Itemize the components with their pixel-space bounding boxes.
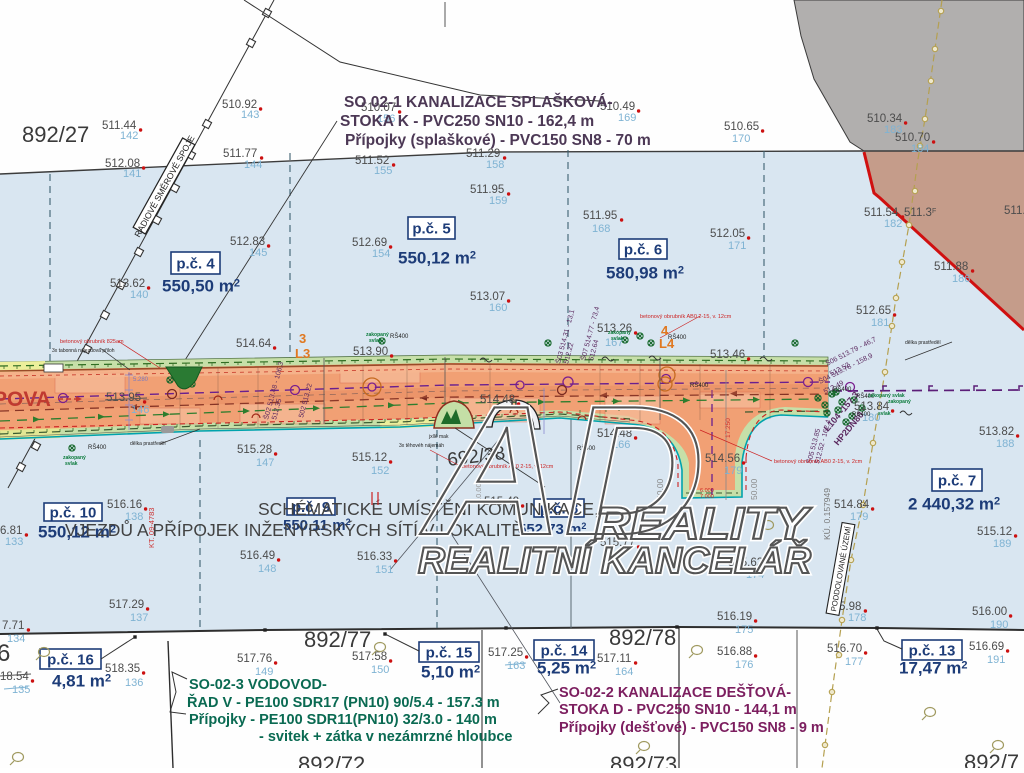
svg-text:513.46: 513.46 — [710, 349, 745, 361]
svg-text:L3: L3 — [295, 346, 310, 361]
svg-text:KÚ. 0.157949: KÚ. 0.157949 — [822, 488, 832, 540]
svg-text:580,98 m2: 580,98 m2 — [606, 264, 684, 283]
svg-text:zakopaný: zakopaný — [888, 399, 911, 405]
svg-text:150: 150 — [371, 664, 389, 676]
svg-text:511.95: 511.95 — [583, 210, 617, 222]
svg-text:svlak: svlak — [611, 336, 624, 342]
svg-text:SO-02-3 VODOVOD-: SO-02-3 VODOVOD- — [189, 677, 327, 693]
svg-text:ŘÍPOVA: ŘÍPOVA — [0, 387, 51, 411]
svg-text:515.28: 515.28 — [237, 444, 272, 456]
svg-text:ŘAD V - PE100 SDR17 (PN10) 90/: ŘAD V - PE100 SDR17 (PN10) 90/5.4 - 157.… — [187, 693, 500, 711]
svg-text:KT. 09-4783: KT. 09-4783 — [147, 508, 156, 548]
svg-text:892/7: 892/7 — [964, 750, 1019, 768]
svg-text:147: 147 — [256, 457, 274, 469]
svg-text:133: 133 — [5, 536, 23, 548]
svg-text:140: 140 — [130, 289, 148, 301]
svg-text:517.58: 517.58 — [352, 651, 387, 663]
svg-text:175: 175 — [735, 624, 753, 636]
svg-text:L4: L4 — [659, 336, 675, 351]
svg-text:143: 143 — [241, 109, 259, 121]
svg-text:516.16: 516.16 — [107, 499, 142, 511]
svg-text:511.3F: 511.3F — [904, 207, 936, 219]
svg-text:188: 188 — [996, 438, 1014, 450]
svg-text:155: 155 — [374, 165, 392, 177]
svg-text:515.12: 515.12 — [977, 526, 1012, 538]
svg-text:516.69: 516.69 — [969, 641, 1004, 653]
svg-text:145: 145 — [249, 247, 267, 259]
svg-text:p.č. 7: p.č. 7 — [938, 473, 976, 490]
svg-text:512.65: 512.65 — [856, 305, 891, 317]
svg-text:p.č. 5: p.č. 5 — [412, 221, 450, 238]
svg-text:4: 4 — [661, 323, 669, 338]
svg-text:512.05: 512.05 — [710, 228, 745, 240]
svg-text:892/27: 892/27 — [22, 122, 89, 147]
svg-text:144: 144 — [244, 159, 262, 171]
svg-text:STOKA D - PVC250 SN10 - 144,1: STOKA D - PVC250 SN10 - 144,1 m — [559, 702, 797, 718]
svg-text:betonový obrubník 825am: betonový obrubník 825am — [60, 339, 124, 345]
svg-text:178: 178 — [848, 612, 866, 624]
svg-text:515.12: 515.12 — [352, 452, 387, 464]
svg-text:SO 02-1 KANALIZACE SPLAŠKOVÁ-: SO 02-1 KANALIZACE SPLAŠKOVÁ- — [344, 93, 613, 111]
svg-text:164: 164 — [615, 666, 633, 678]
svg-text:510.65: 510.65 — [724, 121, 759, 133]
svg-text:511.2: 511.2 — [1004, 205, 1024, 217]
svg-text:516.70: 516.70 — [827, 643, 862, 655]
svg-text:svlak: svlak — [369, 338, 382, 344]
svg-text:SO-02-2 KANALIZACE DEŠŤOVÁ-: SO-02-2 KANALIZACE DEŠŤOVÁ- — [559, 683, 791, 701]
svg-text:REALITNÍ KANCELÁŘ: REALITNÍ KANCELÁŘ — [418, 539, 811, 581]
svg-text:142: 142 — [120, 130, 138, 142]
svg-text:179: 179 — [850, 511, 868, 523]
svg-text:6: 6 — [0, 640, 10, 667]
svg-text:141: 141 — [123, 168, 141, 180]
svg-text:p.č. 6: p.č. 6 — [624, 242, 662, 259]
svg-text:152: 152 — [371, 465, 389, 477]
svg-text:RŠ400: RŠ400 — [852, 411, 871, 418]
svg-text:181: 181 — [871, 317, 889, 329]
svg-text:189: 189 — [993, 538, 1011, 550]
svg-text:190: 190 — [990, 619, 1008, 631]
svg-text:176: 176 — [735, 659, 753, 671]
svg-text:p.č. 10: p.č. 10 — [50, 505, 97, 522]
svg-text:516.49: 516.49 — [240, 550, 275, 562]
svg-text:184: 184 — [911, 143, 929, 155]
svg-text:158: 158 — [486, 159, 504, 171]
svg-text:171: 171 — [728, 240, 746, 252]
svg-text:17,47 m2: 17,47 m2 — [899, 659, 968, 678]
svg-text:dělka prastředěl: dělka prastředěl — [905, 340, 941, 346]
svg-text:892/72: 892/72 — [298, 752, 365, 768]
svg-text:Přípojky (splaškové) - PVC150: Přípojky (splaškové) - PVC150 SN8 - 70 m — [345, 132, 651, 149]
svg-text:514.56: 514.56 — [705, 453, 740, 465]
svg-text:146: 146 — [131, 404, 149, 416]
svg-text:p.č. 4: p.č. 4 — [176, 256, 215, 273]
svg-text:RŠ400: RŠ400 — [833, 386, 852, 393]
svg-text:5.280: 5.280 — [133, 377, 149, 383]
svg-text:p.č. 16: p.č. 16 — [47, 652, 94, 669]
svg-text:7.71: 7.71 — [2, 620, 24, 632]
svg-text:191: 191 — [987, 654, 1005, 666]
svg-text:3x tabonná nájezdová přiloh: 3x tabonná nájezdová přiloh — [52, 348, 115, 354]
svg-text:186: 186 — [952, 273, 970, 285]
svg-text:517.25: 517.25 — [488, 647, 523, 659]
svg-text:892/73: 892/73 — [610, 752, 677, 768]
svg-text:179: 179 — [724, 465, 742, 477]
svg-text:168: 168 — [592, 223, 610, 235]
svg-text:517.11: 517.11 — [597, 653, 631, 665]
svg-text:5,25 m2: 5,25 m2 — [537, 659, 596, 678]
svg-text:170: 170 — [732, 133, 750, 145]
svg-text:516.19: 516.19 — [717, 611, 752, 623]
svg-text:159: 159 — [489, 195, 507, 207]
svg-text:- svitek + zátka v nezámrzné h: - svitek + zátka v nezámrzné hloubce — [259, 729, 512, 745]
svg-text:160: 160 — [489, 302, 507, 314]
svg-text:517.29: 517.29 — [109, 599, 144, 611]
svg-text:892/78: 892/78 — [609, 625, 676, 650]
svg-text:169: 169 — [618, 112, 636, 124]
svg-text:135: 135 — [12, 684, 30, 696]
svg-text:163: 163 — [507, 660, 525, 672]
svg-text:137: 137 — [130, 612, 148, 624]
svg-text:154: 154 — [372, 248, 390, 260]
svg-text:550,50 m2: 550,50 m2 — [162, 277, 240, 296]
svg-text:svlak: svlak — [878, 411, 891, 417]
svg-text:p.č. 14: p.č. 14 — [541, 643, 588, 660]
svg-text:177: 177 — [845, 656, 863, 668]
svg-text:18.54: 18.54 — [0, 671, 29, 683]
svg-text:2 440,32 m2: 2 440,32 m2 — [908, 495, 1000, 514]
svg-text:516.33: 516.33 — [357, 551, 392, 563]
svg-text:517.76: 517.76 — [237, 653, 272, 665]
svg-text:516.00: 516.00 — [972, 606, 1007, 618]
svg-text:p.č. 15: p.č. 15 — [426, 645, 473, 662]
svg-text:513.90: 513.90 — [353, 346, 388, 358]
svg-text:Přípojky (dešťové) - PVC150 SN: Přípojky (dešťové) - PVC150 SN8 - 9 m — [559, 720, 824, 736]
svg-text:892/77: 892/77 — [304, 627, 371, 652]
svg-text:svlak: svlak — [65, 461, 78, 467]
svg-text:RŠ400: RŠ400 — [390, 333, 409, 340]
svg-text:5,10 m2: 5,10 m2 — [421, 663, 480, 682]
svg-text:Přípojky - PE100 SDR11(PN10): Přípojky - PE100 SDR11(PN10) 32/3.0 - 14… — [189, 712, 497, 728]
svg-text:151: 151 — [375, 564, 393, 576]
svg-text:182: 182 — [884, 218, 902, 230]
svg-text:p.č. 13: p.č. 13 — [909, 643, 956, 660]
svg-text:4,81 m2: 4,81 m2 — [52, 672, 111, 691]
svg-text:514.64: 514.64 — [236, 338, 272, 350]
svg-text:183: 183 — [884, 124, 902, 136]
svg-text:511.88: 511.88 — [934, 261, 968, 273]
svg-text:513.82: 513.82 — [979, 426, 1014, 438]
svg-text:513.95: 513.95 — [106, 392, 141, 404]
svg-text:136: 136 — [125, 677, 143, 689]
svg-text:516.88: 516.88 — [717, 646, 752, 658]
svg-text:148: 148 — [258, 563, 276, 575]
svg-text:STOKA K - PVC250 SN10 - 162,4: STOKA K - PVC250 SN10 - 162,4 m — [340, 113, 594, 130]
svg-text:betonový obrubník AB0 2-15, v.: betonový obrubník AB0 2-15, v. 12cm — [640, 314, 732, 320]
svg-text:betonový obrubník AB0 2-15, v.: betonový obrubník AB0 2-15, v. 2cm — [774, 459, 863, 465]
svg-text:RŠ400: RŠ400 — [88, 444, 107, 451]
svg-text:550,12 m2: 550,12 m2 — [398, 249, 476, 268]
svg-text:50.00: 50.00 — [749, 478, 759, 500]
svg-text:17.250: 17.250 — [725, 418, 732, 438]
svg-text:514.84: 514.84 — [834, 499, 870, 511]
svg-text:3: 3 — [299, 331, 306, 346]
